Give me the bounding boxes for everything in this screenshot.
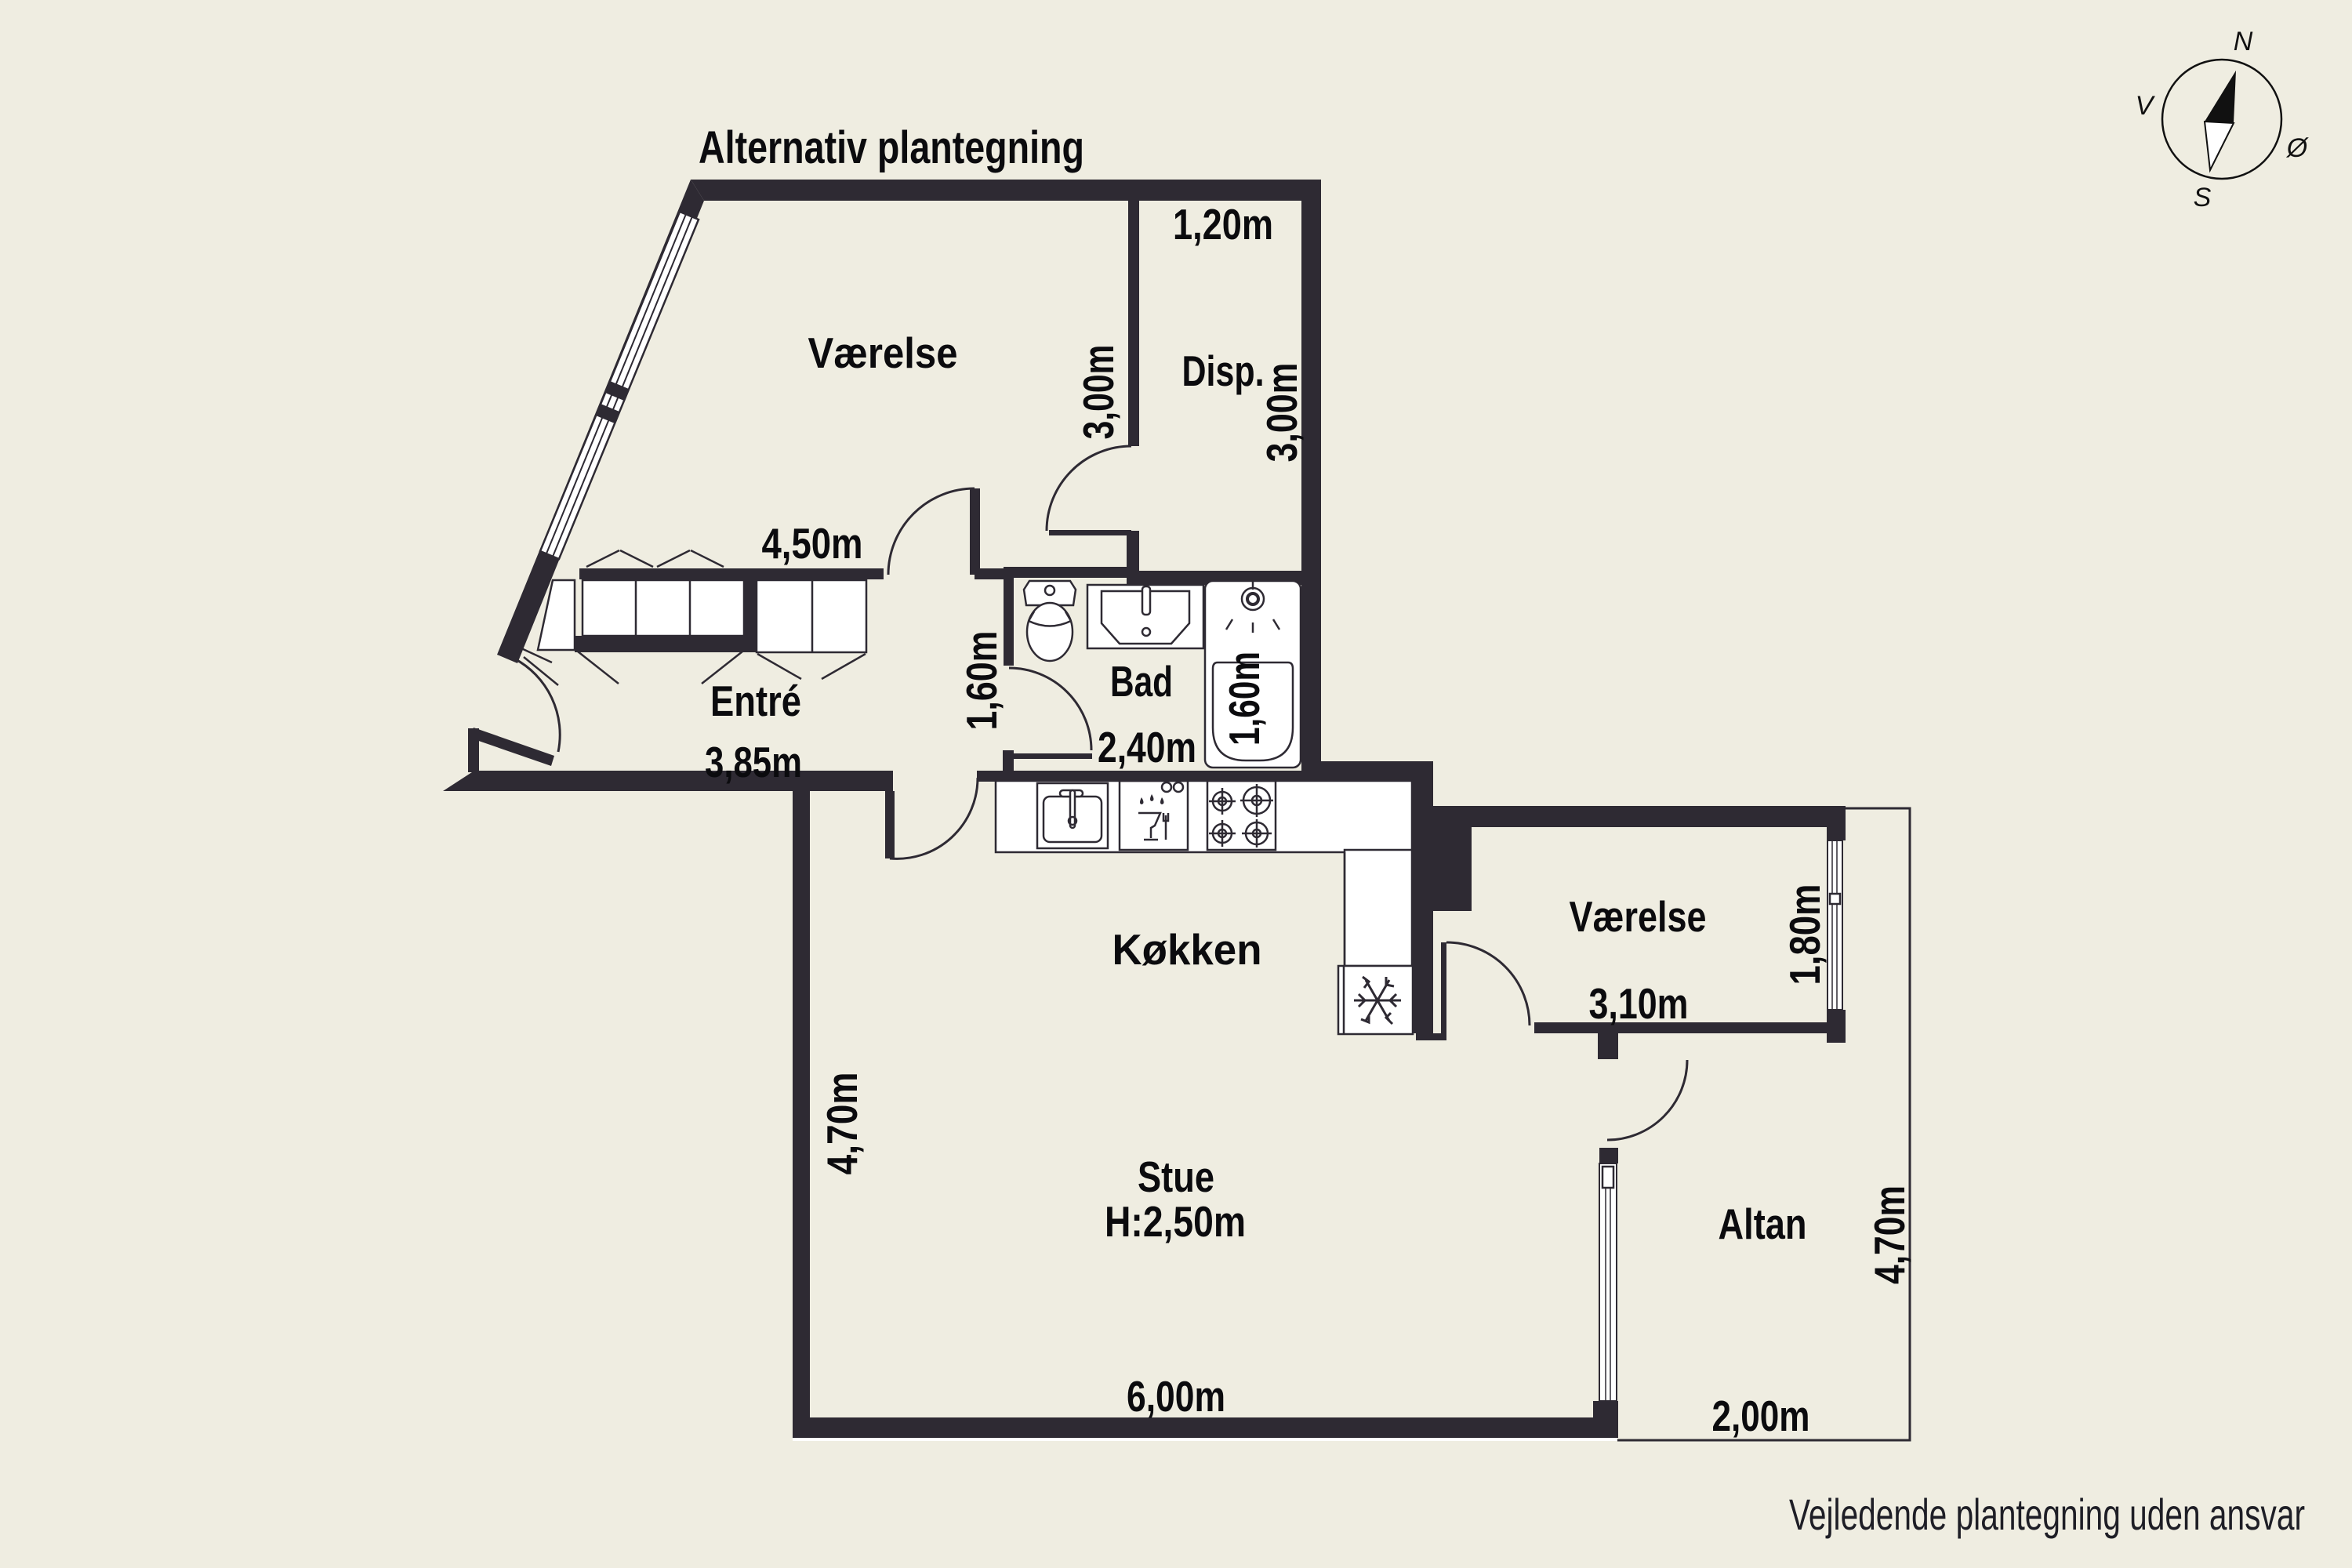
svg-text:Entré: Entré	[710, 677, 801, 725]
svg-text:Disp.: Disp.	[1182, 347, 1265, 395]
svg-text:H:2,50m: H:2,50m	[1105, 1197, 1246, 1246]
svg-text:6,00m: 6,00m	[1127, 1372, 1225, 1421]
svg-text:Bad: Bad	[1110, 657, 1173, 706]
svg-text:Køkken: Køkken	[1112, 925, 1262, 974]
svg-text:Alternativ plantegning: Alternativ plantegning	[699, 122, 1084, 173]
svg-text:Værelse: Værelse	[1570, 892, 1707, 941]
svg-text:1,60m: 1,60m	[1220, 652, 1269, 746]
svg-text:Værelse: Værelse	[808, 328, 958, 377]
svg-text:3,10m: 3,10m	[1589, 979, 1689, 1028]
svg-text:Altan: Altan	[1719, 1200, 1807, 1248]
svg-text:1,80m: 1,80m	[1780, 884, 1829, 985]
svg-text:3,85m: 3,85m	[705, 738, 802, 786]
svg-text:S: S	[2194, 183, 2212, 212]
svg-text:1,20m: 1,20m	[1173, 200, 1273, 249]
svg-text:2,40m: 2,40m	[1098, 723, 1196, 771]
svg-text:4,70m: 4,70m	[1865, 1185, 1914, 1284]
svg-text:V: V	[2136, 91, 2156, 121]
svg-text:3,00m: 3,00m	[1258, 363, 1306, 463]
svg-text:Stue: Stue	[1138, 1152, 1214, 1201]
svg-text:Vejledende plantegning uden an: Vejledende plantegning uden ansvar	[1789, 1490, 2305, 1539]
svg-text:N: N	[2234, 27, 2253, 56]
svg-text:3,00m: 3,00m	[1074, 345, 1123, 440]
svg-text:4,70m: 4,70m	[818, 1073, 866, 1175]
svg-text:4,50m: 4,50m	[762, 519, 863, 568]
svg-text:1,60m: 1,60m	[957, 631, 1006, 731]
svg-text:Ø: Ø	[2286, 133, 2310, 163]
svg-text:2,00m: 2,00m	[1712, 1392, 1810, 1440]
